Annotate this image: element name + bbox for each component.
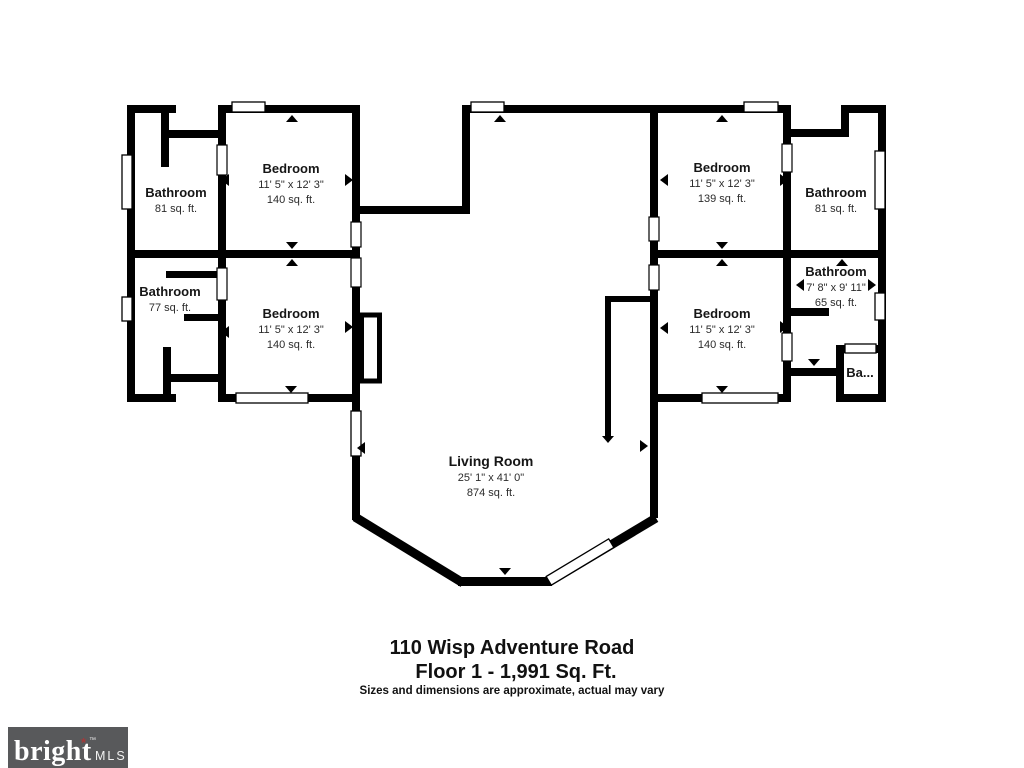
room-area-living-room: 874 sq. ft. — [467, 487, 515, 499]
room-label-bathroom-mid-left: Bathroom — [139, 284, 200, 299]
room-label-bedroom-bottom-right: Bedroom — [693, 306, 750, 321]
door-opening — [649, 217, 659, 241]
wall — [352, 206, 470, 214]
logo-trademark: ™ — [89, 737, 96, 744]
wall — [127, 250, 360, 258]
window — [875, 293, 885, 320]
room-dims-bathroom-mid-right: 7' 8" x 9' 11" — [806, 282, 866, 294]
door-arrow-down — [808, 359, 820, 366]
window — [744, 102, 778, 112]
wall — [791, 308, 829, 316]
wall — [836, 394, 886, 402]
door-arrow-down — [716, 242, 728, 249]
wall-diagonal — [355, 517, 463, 583]
door-arrow-up — [286, 259, 298, 266]
wall — [161, 105, 169, 167]
wall — [184, 314, 218, 321]
walls — [127, 105, 886, 586]
door-arrow-up — [716, 259, 728, 266]
room-dims-bedroom-top-left: 11' 5" x 12' 3" — [258, 179, 324, 191]
wall — [168, 130, 226, 138]
room-dims-bedroom-bottom-left: 11' 5" x 12' 3" — [258, 324, 324, 336]
wall — [836, 345, 844, 402]
room-labels: Bathroom 81 sq. ft. Bedroom 11' 5" x 12'… — [139, 160, 873, 499]
wall — [605, 296, 611, 436]
window — [232, 102, 265, 112]
door-opening — [782, 144, 792, 172]
door-arrow-down — [499, 568, 511, 575]
logo-mls-text: MLS — [95, 749, 127, 763]
door-arrow-right — [345, 174, 353, 186]
room-dims-living-room: 25' 1" x 41' 0" — [458, 472, 525, 484]
room-area-bedroom-top-left: 140 sq. ft. — [267, 194, 315, 206]
floor-plan-svg: Bathroom 81 sq. ft. Bedroom 11' 5" x 12'… — [0, 0, 1024, 768]
room-area-bathroom-mid-right: 65 sq. ft. — [815, 297, 857, 309]
windows — [122, 102, 885, 585]
wall — [352, 105, 360, 520]
door-opening — [351, 258, 361, 287]
window — [122, 297, 132, 321]
room-label-bathroom-small-right: Ba... — [846, 365, 873, 380]
wall — [605, 296, 653, 302]
door-arrow-right — [640, 440, 648, 452]
room-label-living-room: Living Room — [449, 453, 534, 469]
room-dims-bedroom-bottom-right: 11' 5" x 12' 3" — [689, 324, 755, 336]
door-arrow-down — [285, 386, 297, 393]
room-area-bedroom-bottom-right: 140 sq. ft. — [698, 339, 746, 351]
wall — [650, 113, 658, 518]
wall — [462, 113, 470, 214]
room-area-bathroom-top-right: 81 sq. ft. — [815, 203, 857, 215]
door-arrow-down — [602, 436, 614, 443]
footer: 110 Wisp Adventure Road Floor 1 - 1,991 … — [360, 637, 665, 697]
floor-plan-page: Bathroom 81 sq. ft. Bedroom 11' 5" x 12'… — [0, 0, 1024, 768]
door-arrow-down — [286, 242, 298, 249]
room-label-bathroom-top-right: Bathroom — [805, 185, 866, 200]
window — [702, 393, 778, 403]
door-arrow-right — [868, 279, 876, 291]
wall — [650, 250, 886, 258]
door-opening — [351, 222, 361, 247]
room-area-bathroom-top-left: 81 sq. ft. — [155, 203, 197, 215]
room-label-bedroom-top-right: Bedroom — [693, 160, 750, 175]
window — [122, 155, 132, 209]
window — [236, 393, 308, 403]
window — [875, 151, 885, 209]
room-dims-bedroom-top-right: 11' 5" x 12' 3" — [689, 178, 755, 190]
door-arrow-down — [716, 386, 728, 393]
brand-logo: bright * ™ MLS — [8, 727, 128, 768]
door-opening — [217, 268, 227, 300]
chimney — [362, 315, 380, 381]
door-arrow-up — [494, 115, 506, 122]
door-opening — [782, 333, 792, 361]
door-arrow-left — [660, 174, 668, 186]
room-area-bedroom-bottom-left: 140 sq. ft. — [267, 339, 315, 351]
room-label-bathroom-top-left: Bathroom — [145, 185, 206, 200]
room-area-bathroom-mid-left: 77 sq. ft. — [149, 302, 191, 314]
door-opening — [649, 265, 659, 290]
window — [471, 102, 504, 112]
wall — [163, 347, 171, 402]
window — [845, 344, 876, 353]
wall — [791, 129, 845, 137]
room-label-bedroom-top-left: Bedroom — [262, 161, 319, 176]
wall — [791, 368, 838, 376]
wall — [462, 105, 791, 113]
room-area-bedroom-top-right: 139 sq. ft. — [698, 193, 746, 205]
disclaimer-text: Sizes and dimensions are approximate, ac… — [360, 685, 665, 697]
door-arrow-up — [716, 115, 728, 122]
address-title: 110 Wisp Adventure Road — [390, 637, 635, 659]
floor-title: Floor 1 - 1,991 Sq. Ft. — [415, 661, 616, 683]
room-label-bathroom-mid-right: Bathroom — [805, 264, 866, 279]
wall — [171, 374, 218, 382]
wall — [166, 271, 218, 278]
wall — [458, 577, 552, 586]
door-arrow-up — [286, 115, 298, 122]
window-diagonal — [546, 539, 614, 585]
door-arrow-left — [660, 322, 668, 334]
door-arrow-left — [796, 279, 804, 291]
room-label-bedroom-bottom-left: Bedroom — [262, 306, 319, 321]
door-opening — [217, 145, 227, 175]
door-arrow-right — [345, 321, 353, 333]
